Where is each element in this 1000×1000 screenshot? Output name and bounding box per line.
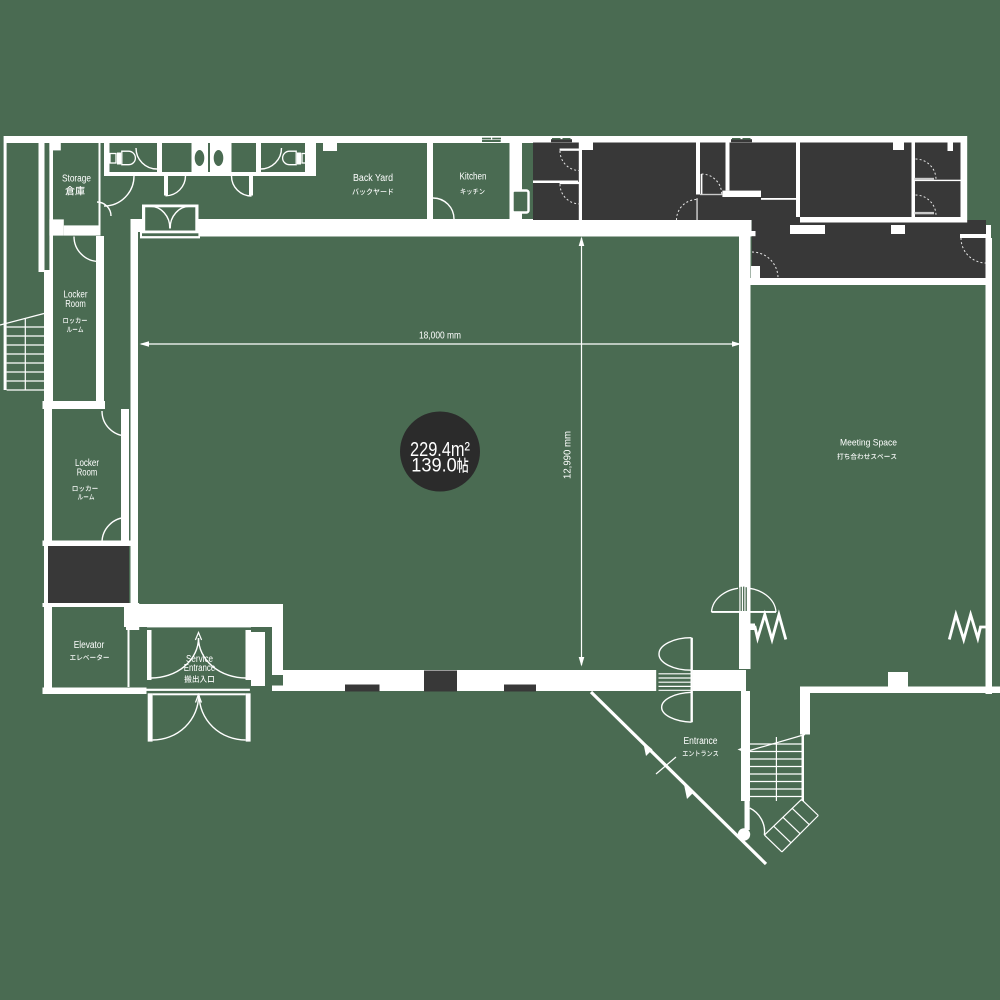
svg-text:Entrance: Entrance	[184, 663, 216, 674]
svg-text:18,000 mm: 18,000 mm	[419, 331, 461, 342]
svg-text:Kitchen: Kitchen	[460, 172, 487, 183]
svg-text:139.0: 139.0	[411, 456, 457, 477]
svg-text:Meeting Space: Meeting Space	[840, 438, 897, 448]
svg-text:Elevator: Elevator	[74, 640, 105, 651]
svg-text:Storage: Storage	[62, 174, 91, 185]
svg-text:12,990 mm: 12,990 mm	[563, 431, 574, 479]
svg-text:Entrance: Entrance	[684, 736, 718, 747]
svg-text:Back Yard: Back Yard	[353, 173, 393, 184]
svg-text:Room: Room	[65, 299, 86, 310]
svg-text:Room: Room	[77, 468, 98, 479]
